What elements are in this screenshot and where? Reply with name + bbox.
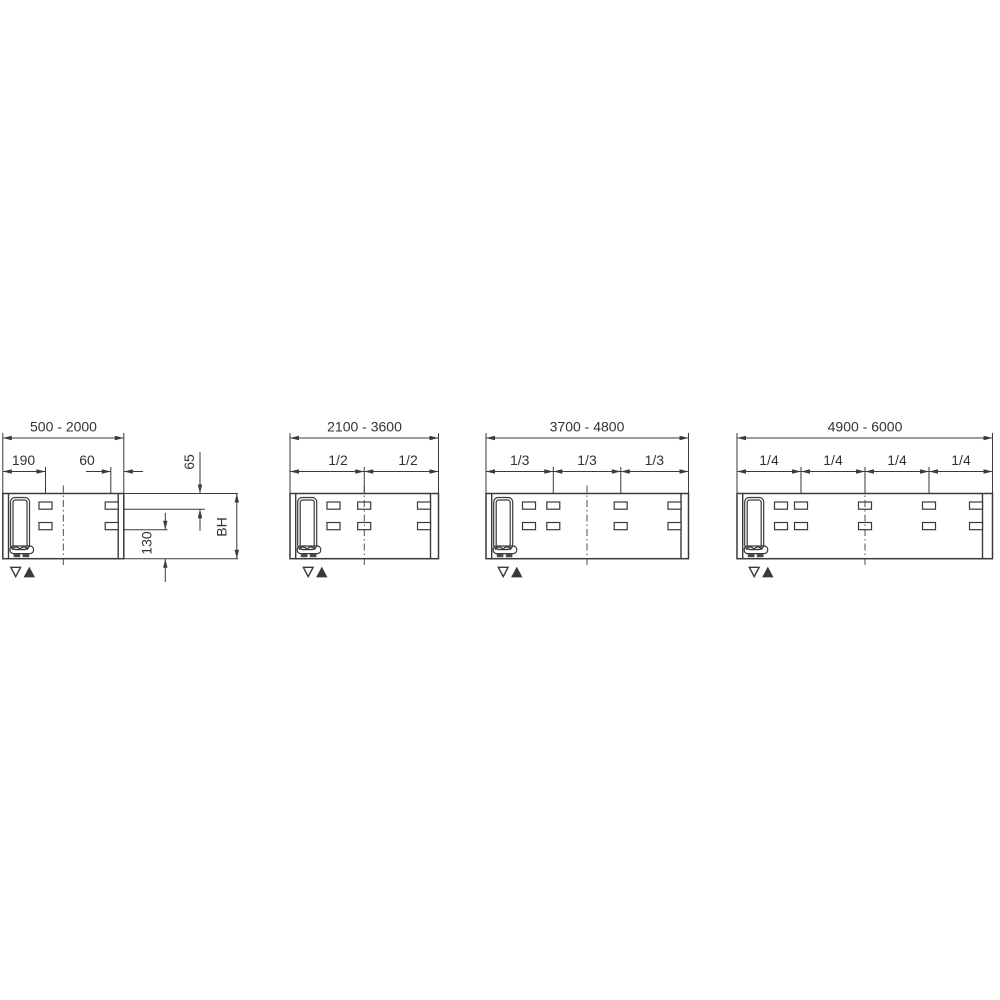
slot-hole (418, 523, 431, 530)
triangle-down-icon (303, 567, 313, 576)
slot-offset-dimensions: 190 60 (3, 452, 143, 494)
slot-hole (358, 523, 371, 530)
fraction-label: 1/4 (823, 452, 843, 468)
slot-hole (668, 523, 681, 530)
slot-hole (39, 502, 52, 509)
triangle-up-icon (24, 567, 35, 578)
slot-hole (923, 502, 936, 509)
diagram-500-2000: 500 - 2000 190 60 65 130 BH (3, 419, 238, 583)
fraction-label: 1/2 (398, 452, 418, 468)
slot-hole (923, 523, 936, 530)
slot-hole (523, 523, 536, 530)
panel-body (486, 486, 689, 569)
triangle-down-icon (498, 567, 508, 576)
body-height-label: BH (214, 517, 230, 536)
fraction-label: 1/4 (887, 452, 907, 468)
slot-hole (775, 523, 788, 530)
slot-hole (523, 502, 536, 509)
diagram-3700-4800: 3700 - 4800 1/3 1/3 1/3 (486, 419, 689, 578)
panel-drawing-svg: 500 - 2000 190 60 65 130 BH (0, 0, 1000, 1000)
slot-hole (418, 502, 431, 509)
right-slot-offset-label: 60 (79, 452, 95, 468)
triangle-up-icon (762, 567, 773, 578)
range-label: 500 - 2000 (30, 419, 97, 435)
slot-hole (105, 502, 118, 509)
slot-hole (614, 502, 627, 509)
triangle-up-icon (316, 567, 327, 578)
slot-hole (859, 523, 872, 530)
diagram-4900-6000: 4900 - 6000 1/4 1/4 1/4 1/4 (737, 419, 993, 578)
slot-hole (970, 523, 983, 530)
panel-body (3, 486, 124, 569)
slot-hole (327, 523, 340, 530)
slot-hole (795, 502, 808, 509)
fraction-label: 1/4 (759, 452, 779, 468)
slot-hole (547, 502, 560, 509)
triangle-down-icon (11, 567, 21, 576)
fraction-label: 1/3 (645, 452, 665, 468)
triangle-up-icon (511, 567, 522, 578)
fraction-label: 1/4 (951, 452, 971, 468)
range-label: 4900 - 6000 (828, 419, 903, 435)
top-slot-offset-label: 65 (181, 454, 197, 470)
diagram-2100-3600: 2100 - 3600 1/2 1/2 (290, 419, 439, 578)
slot-hole (105, 523, 118, 530)
fraction-label: 1/3 (510, 452, 530, 468)
range-label: 2100 - 3600 (327, 419, 402, 435)
slot-hole (547, 523, 560, 530)
slot-hole (795, 523, 808, 530)
panel-body (290, 486, 439, 569)
slot-hole (775, 502, 788, 509)
slot-hole (668, 502, 681, 509)
slot-hole (614, 523, 627, 530)
technical-drawing-canvas: 500 - 2000 190 60 65 130 BH (0, 0, 1000, 1000)
panel-body (737, 486, 993, 569)
slot-hole (327, 502, 340, 509)
left-slot-offset-label: 190 (12, 452, 36, 468)
bottom-slot-offset-label: 130 (139, 531, 155, 555)
fraction-label: 1/3 (577, 452, 597, 468)
slot-hole (970, 502, 983, 509)
slot-hole (39, 523, 52, 530)
fraction-label: 1/2 (328, 452, 348, 468)
triangle-down-icon (749, 567, 759, 576)
range-label: 3700 - 4800 (550, 419, 625, 435)
